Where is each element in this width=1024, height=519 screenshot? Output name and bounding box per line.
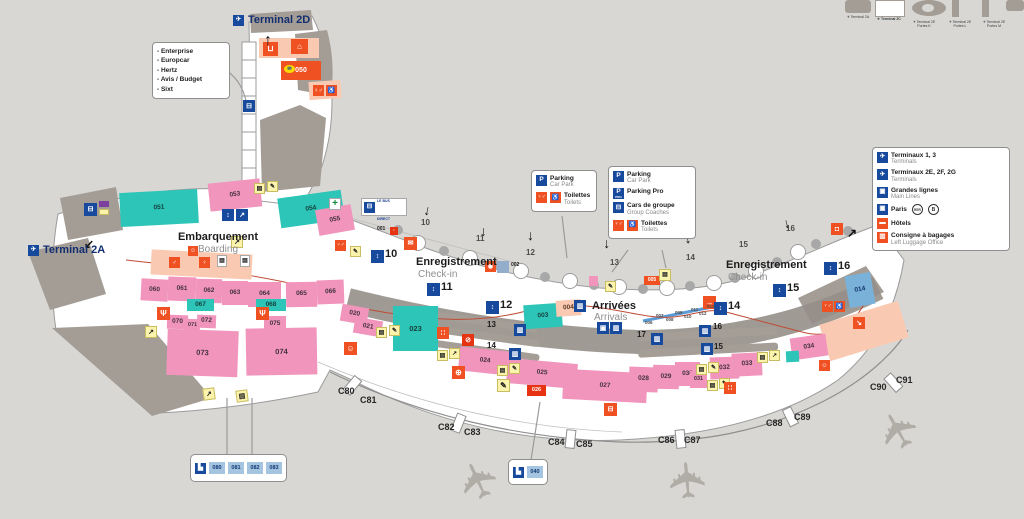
map-label: C84 <box>548 438 565 447</box>
car-rental-box: - Enterprise - Europcar - Hertz - Avis /… <box>152 42 230 99</box>
terminal-2a-label: Terminal 2A <box>43 244 105 256</box>
minimap-road <box>982 0 989 17</box>
parking-pro-icon: PPRO <box>613 188 624 199</box>
arrivals-heading-en: Arrivals <box>594 312 627 323</box>
plane-icon: ✈ <box>877 152 888 163</box>
map-label: 13 <box>610 259 619 267</box>
marker-icon: · <box>390 227 398 235</box>
plane-icon: ✈ <box>877 169 888 180</box>
car-rental-item: - Hertz <box>157 66 225 75</box>
map-label: 010 <box>684 315 692 320</box>
nursery-icon: ☺ <box>344 342 357 355</box>
toilets-icon: ♀♂ <box>613 220 624 231</box>
toilets-icon: ♀♂ <box>536 192 547 203</box>
map-label: 12 <box>526 249 535 257</box>
terminal-2d-title: ✈ Terminal 2D <box>233 14 310 26</box>
map-label: C88 <box>766 419 783 428</box>
map-label: 008 <box>666 318 674 323</box>
accessible-icon: ♿ <box>326 85 337 96</box>
no-smoking-icon: ⊘ <box>462 334 474 346</box>
map-label: 10 <box>385 249 397 260</box>
room-067: 067 <box>187 299 214 311</box>
legend-hotels-label: Hôtels <box>891 220 911 227</box>
map-label: 15 <box>739 241 748 249</box>
pen-icon: ✎ <box>267 181 278 192</box>
map-label: C90 <box>870 383 887 392</box>
room-073: 073 <box>166 329 239 377</box>
car-rental-item: - Avis / Budget <box>157 75 225 84</box>
down-arrow: ↓ <box>423 202 433 217</box>
stairs-box-080-083: ▙ 080 081 082 083 <box>190 454 287 482</box>
minimap-label: ✈ Terminal 2C <box>872 17 906 21</box>
service-icon: ⊕ <box>452 366 465 379</box>
checkin-left-heading: Enregistrement <box>416 256 497 268</box>
accessible-icon: ♿ <box>550 192 561 203</box>
legend-label: Consigne à bagages <box>891 232 954 239</box>
minimap-label: ✈ Terminal 2EPortes K <box>906 20 942 28</box>
map-label: 14 <box>728 301 740 312</box>
map-label: 10 <box>421 219 430 227</box>
stairs-icon: ▙ <box>195 463 206 474</box>
embarquement-heading: Embarquement <box>152 231 284 243</box>
legend-label-en: Terminals <box>891 159 936 166</box>
map-label: 15 <box>787 283 799 294</box>
post-box-icon: ✉ <box>404 237 417 250</box>
car-rental-item: - Sixt <box>157 85 225 94</box>
baggage-icon: ▥ <box>574 300 586 312</box>
lift-icon: ↕ <box>773 284 786 297</box>
legend-label: Grandes lignes <box>891 187 938 194</box>
car-rental-item: - Europcar <box>157 56 225 65</box>
legend-label: Terminaux 1, 3 <box>891 152 936 159</box>
map-label: 16 <box>713 323 722 331</box>
bus-icon: ⊟ <box>613 202 624 213</box>
legend-paris-label: Paris <box>891 206 907 213</box>
room-063: 063 <box>222 281 248 305</box>
minimap-shape <box>1006 0 1024 11</box>
map-label: 013 <box>707 305 715 310</box>
minimap-road <box>952 0 959 17</box>
map-label: 11 <box>441 282 453 293</box>
room-082: 082 <box>247 462 263 474</box>
pen-icon: ✎ <box>350 246 361 257</box>
plane-icon: ✈ <box>28 245 39 256</box>
down-arrow: ↓ <box>527 228 534 242</box>
train-icon: ▣ <box>877 187 888 198</box>
minimap-shape <box>845 0 871 13</box>
map-label: C89 <box>794 413 811 422</box>
terminal-2d-label: Terminal 2D <box>248 14 310 26</box>
toilets-icon: ♀ <box>199 257 210 268</box>
map-label: 14 <box>487 342 496 350</box>
checkin-right-heading-en: Check-in <box>728 272 767 283</box>
parking-label-en: Car Park <box>550 182 574 189</box>
map-label: C91 <box>896 376 913 385</box>
toilets-label-en: Toilets <box>641 227 667 234</box>
games-icon: ∷ <box>437 327 449 339</box>
map-label: 001 <box>377 227 385 232</box>
parking-label: Parking <box>627 171 651 178</box>
room-040: 040 <box>527 466 543 478</box>
baggage-icon: ▥ <box>651 333 663 345</box>
shop-icon: ◘ <box>831 223 843 235</box>
games-icon: ∷ <box>724 382 736 394</box>
map-label: 16 <box>838 261 850 272</box>
room-005: 005 <box>644 276 660 285</box>
map-label: C82 <box>438 423 455 432</box>
airport-terminal-map: ✈ ✈ ✈ 0500510530540550600610620630640650… <box>0 0 1024 519</box>
legend-label-en: Left Luggage Office <box>891 240 954 247</box>
room-081: 081 <box>228 462 244 474</box>
escalator-icon: ↗ <box>236 209 248 221</box>
map-label: 006 <box>645 321 653 326</box>
arrivals-heading: Arrivées <box>592 300 636 312</box>
pen-icon: ✎ <box>389 325 400 336</box>
parking-label-en: Car Park <box>627 178 651 185</box>
room-026: 026 <box>527 385 546 396</box>
minimap-label: ✈ Terminal 2EPortes M <box>976 20 1012 28</box>
ticket-machine-icon: ▤ <box>497 365 508 376</box>
minimap-shape <box>875 0 905 17</box>
toilets-icon: ♂ <box>169 257 180 268</box>
machine-icon: ▤ <box>240 255 250 267</box>
baggage-icon: ▥ <box>701 343 713 355</box>
terminal-2a-title: ✈ Terminal 2A <box>28 244 105 256</box>
pram-icon: ☺ <box>819 360 830 371</box>
le-bus-direct-box: ⊟ LE BUS DIRECT <box>361 198 407 216</box>
train-icon: ▣ <box>877 204 888 215</box>
restaurant-icon: Ψ <box>256 307 269 320</box>
stairs-icon: ▙ <box>513 467 524 478</box>
luggage-icon: ▥ <box>877 232 888 243</box>
ticket-machine-icon: ▤ <box>659 269 671 281</box>
pen-icon: ✎ <box>509 363 520 374</box>
map-label: 007 <box>656 314 664 319</box>
area-block <box>786 351 800 363</box>
room-061: 061 <box>168 277 197 302</box>
car-rental-item: - Enterprise <box>157 47 225 56</box>
car-rental-icon: ⊟ <box>243 100 255 112</box>
room-060: 060 <box>140 278 168 301</box>
escalator-icon: ↗ <box>449 348 460 359</box>
legend-box: ✈ Terminaux 1, 3 Terminals ✈ Terminaux 2… <box>872 147 1010 251</box>
toilets-icon: ♀♂ <box>313 85 324 96</box>
control-icon: ▣ <box>597 322 609 334</box>
minimap-roundabout-hole <box>922 4 934 12</box>
info-chip <box>99 209 109 215</box>
pen-icon: ✎ <box>605 281 616 292</box>
parking-label: Parking <box>550 175 574 182</box>
room-072: 072 <box>197 315 216 329</box>
room-074: 074 <box>246 327 318 375</box>
toilets-icon: ♀♂ <box>822 301 833 312</box>
parking-icon: P <box>613 171 624 182</box>
map-label: C85 <box>576 440 593 449</box>
post-office-icon: ✉ <box>284 65 295 73</box>
room-014: 014 <box>844 272 875 308</box>
rer-badge: RER <box>912 204 923 215</box>
map-label: 15 <box>714 343 723 351</box>
machine-icon: ▤ <box>217 255 227 267</box>
ticket-machine-icon: ▤ <box>437 350 448 361</box>
map-label: 002 <box>511 263 519 268</box>
escalator-icon: ↗ <box>145 326 157 338</box>
map-label: C81 <box>360 396 377 405</box>
map-label: C87 <box>684 436 701 445</box>
legend-label-en: Terminals <box>891 177 956 184</box>
stairs-box-040: ▙ 040 <box>508 459 548 485</box>
lift-icon: ↕ <box>427 283 440 296</box>
toilets-icon: ♀♂ <box>335 240 346 251</box>
plane-icon: ✈ <box>233 15 244 26</box>
lift-icon: ↕ <box>486 301 499 314</box>
map-label: 12 <box>500 300 512 311</box>
legend-label: Terminaux 2E, 2F, 2G <box>891 169 956 176</box>
map-label: 14 <box>686 254 695 262</box>
baggage-icon: ▥ <box>514 324 526 336</box>
parking-box-small: P Parking Car Park ♀♂ ♿ Toilettes Toilet… <box>531 170 597 212</box>
room-066: 066 <box>317 280 345 305</box>
taxi-icon: ⊟ <box>604 403 617 416</box>
pen-icon: ✎ <box>708 362 719 373</box>
map-label: 11 <box>476 235 484 243</box>
escalator-icon: ↘ <box>853 317 865 329</box>
map-label: C86 <box>658 436 675 445</box>
rer-b-badge: B <box>928 204 939 215</box>
map-label: 009 <box>675 311 683 316</box>
map-label: C80 <box>338 387 355 396</box>
toilets-label: Toilettes <box>641 220 667 227</box>
escalator-icon: ↗ <box>202 387 216 401</box>
lift-icon: ↕ <box>714 302 727 315</box>
accessible-icon: ♿ <box>834 301 845 312</box>
toilets-label: Toilettes <box>564 192 590 199</box>
coaches-label-en: Group Coaches <box>627 210 675 217</box>
ticket-machine-icon: ▤ <box>707 380 718 391</box>
map-label: 16 <box>786 225 795 233</box>
room-051: 051 <box>119 189 199 227</box>
checkin-left-heading-en: Check-in <box>418 269 457 280</box>
room-065: 065 <box>286 282 317 308</box>
minimap-label: ✈ Terminal 2A <box>841 15 875 19</box>
ticket-machine-icon: ▤ <box>757 352 768 363</box>
map-label: C83 <box>464 428 481 437</box>
checkin-right-heading: Enregistrement <box>726 259 807 271</box>
coaches-label: Cars de groupe <box>627 202 675 209</box>
map-label: 012 <box>699 312 707 317</box>
parking-box-large: P Parking Car Park PPRO Parking Pro ⊟ Ca… <box>608 166 696 239</box>
lift-icon: ↕ <box>371 250 384 263</box>
room-080: 080 <box>209 462 225 474</box>
up-arrow: ↑ <box>264 33 272 49</box>
parking-pro-label: Parking Pro <box>627 188 663 195</box>
ticket-machine-icon: ▤ <box>254 183 265 194</box>
map-label: 17 <box>637 331 646 339</box>
pen-icon: ✎ <box>497 379 510 392</box>
hotel-bed-icon: ▬ <box>877 218 888 229</box>
baggage-icon: ▥ <box>699 325 711 337</box>
ticket-machine-icon: ▤ <box>235 389 249 403</box>
lift-icon: ↕ <box>824 262 837 275</box>
baggage-icon: ▥ <box>509 348 521 360</box>
escalator-icon: ↗ <box>769 350 780 361</box>
info-chip <box>99 201 109 207</box>
map-label: 011 <box>691 308 698 313</box>
lift-icon: ↕ <box>222 209 234 221</box>
room-083: 083 <box>266 462 282 474</box>
accessible-icon: ♿ <box>627 220 638 231</box>
le-bus-direct-label: LE BUS <box>377 199 390 203</box>
le-bus-direct-label: DIRECT <box>377 217 390 221</box>
restaurant-icon: Ψ <box>157 307 170 320</box>
area-block <box>497 261 509 273</box>
boarding-heading: Boarding <box>152 244 284 255</box>
info-chip <box>589 276 598 286</box>
ne-arrow: ↗ <box>847 227 857 239</box>
map-label: 13 <box>487 321 496 329</box>
shop-icon: ⌂ <box>291 39 308 54</box>
bus-icon: ⊟ <box>84 203 97 216</box>
minimap-label: ✈ Terminal 2EPortes L <box>942 20 978 28</box>
pharmacy-icon: + <box>329 198 341 210</box>
ticket-machine-icon: ▤ <box>376 327 387 338</box>
control-icon: ▥ <box>610 322 622 334</box>
parking-icon: P <box>536 175 547 186</box>
bus-icon: ⊟ <box>364 202 375 213</box>
ticket-machine-icon: ▤ <box>696 364 707 375</box>
legend-label-en: Main Lines <box>891 194 938 201</box>
toilets-label-en: Toilets <box>564 200 590 207</box>
